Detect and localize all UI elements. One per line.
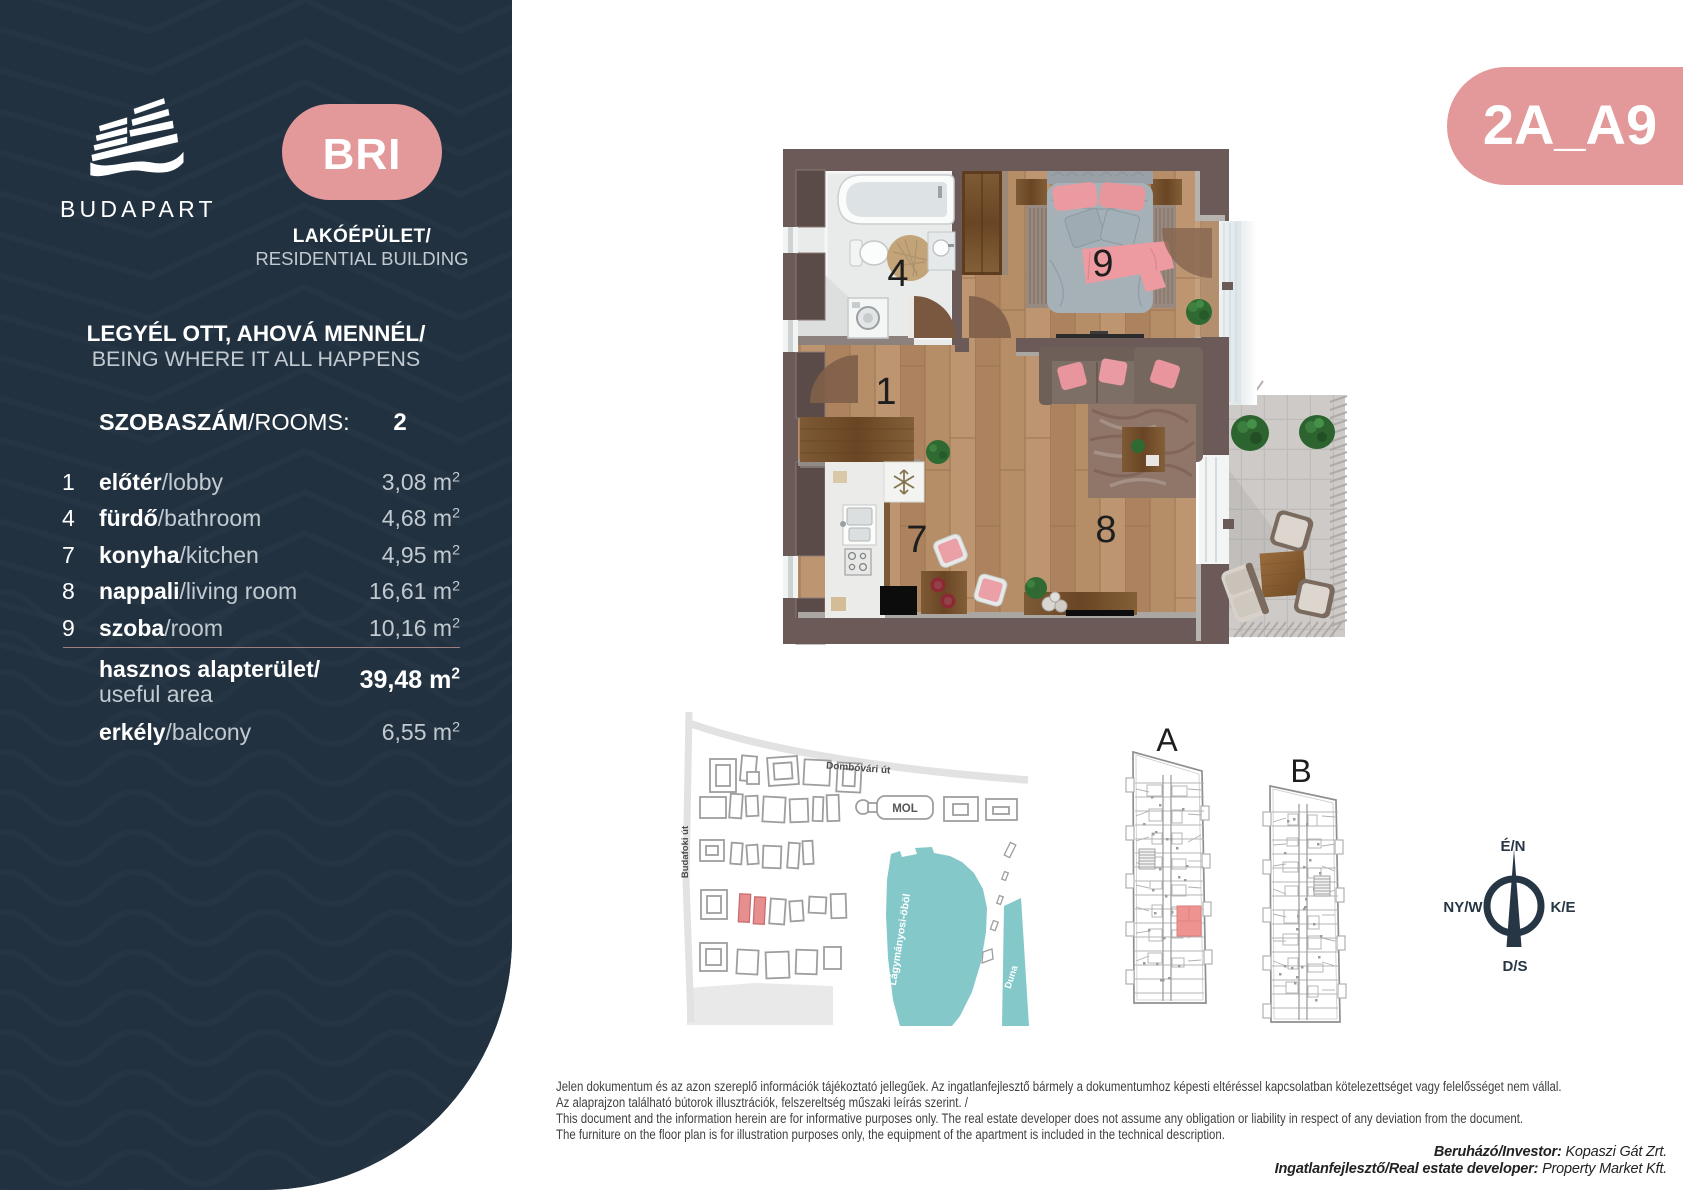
svg-text:Budafoki út: Budafoki út xyxy=(680,825,691,878)
svg-text:7: 7 xyxy=(906,519,927,561)
svg-text:1: 1 xyxy=(875,371,896,413)
svg-text:É/N: É/N xyxy=(1500,838,1525,855)
svg-text:8: 8 xyxy=(1095,509,1116,551)
svg-text:MOL: MOL xyxy=(892,803,918,815)
svg-text:A: A xyxy=(1156,725,1178,758)
svg-text:4: 4 xyxy=(887,253,908,295)
svg-text:D/S: D/S xyxy=(1502,958,1527,975)
svg-text:B: B xyxy=(1290,753,1311,789)
svg-text:9: 9 xyxy=(1092,243,1113,285)
svg-text:K/E: K/E xyxy=(1550,899,1575,916)
svg-text:NY/W: NY/W xyxy=(1443,899,1483,916)
